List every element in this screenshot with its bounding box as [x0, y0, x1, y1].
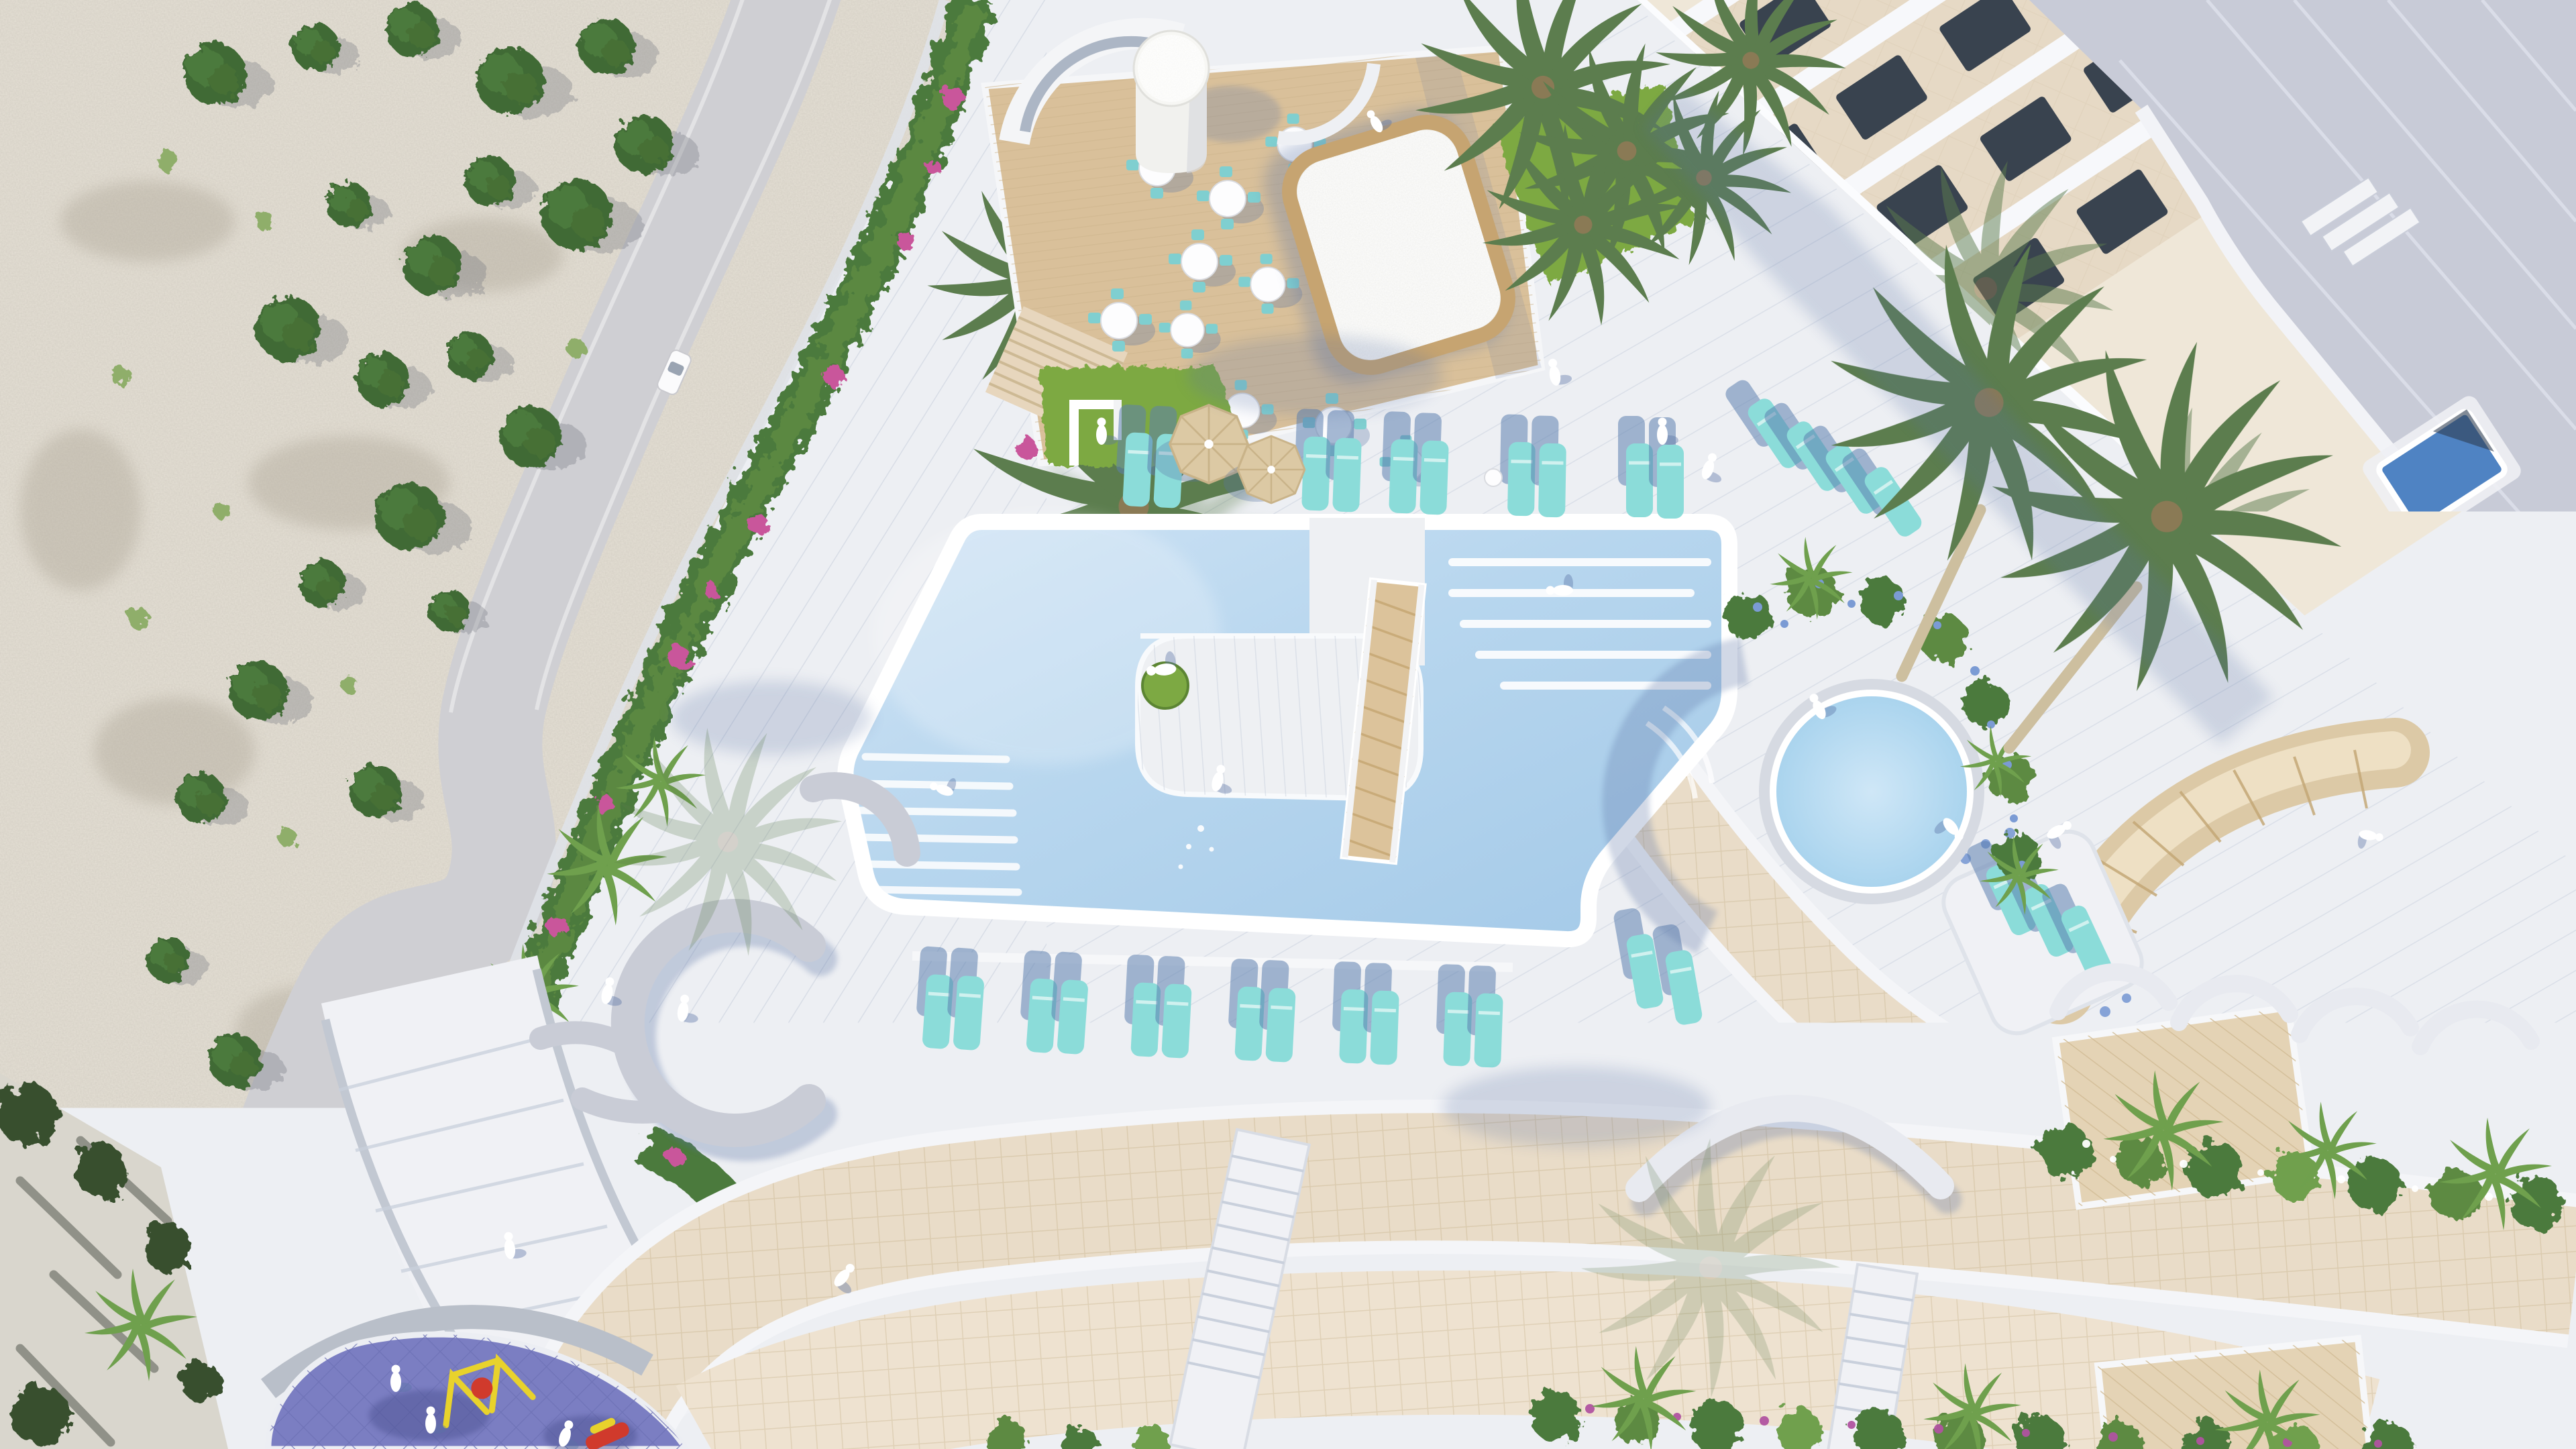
aerial-resort-render: Aerial resort pool deck rendering	[0, 0, 2576, 1449]
main-pool: Main free-form swimming pool Swim lane m…	[845, 510, 1729, 939]
